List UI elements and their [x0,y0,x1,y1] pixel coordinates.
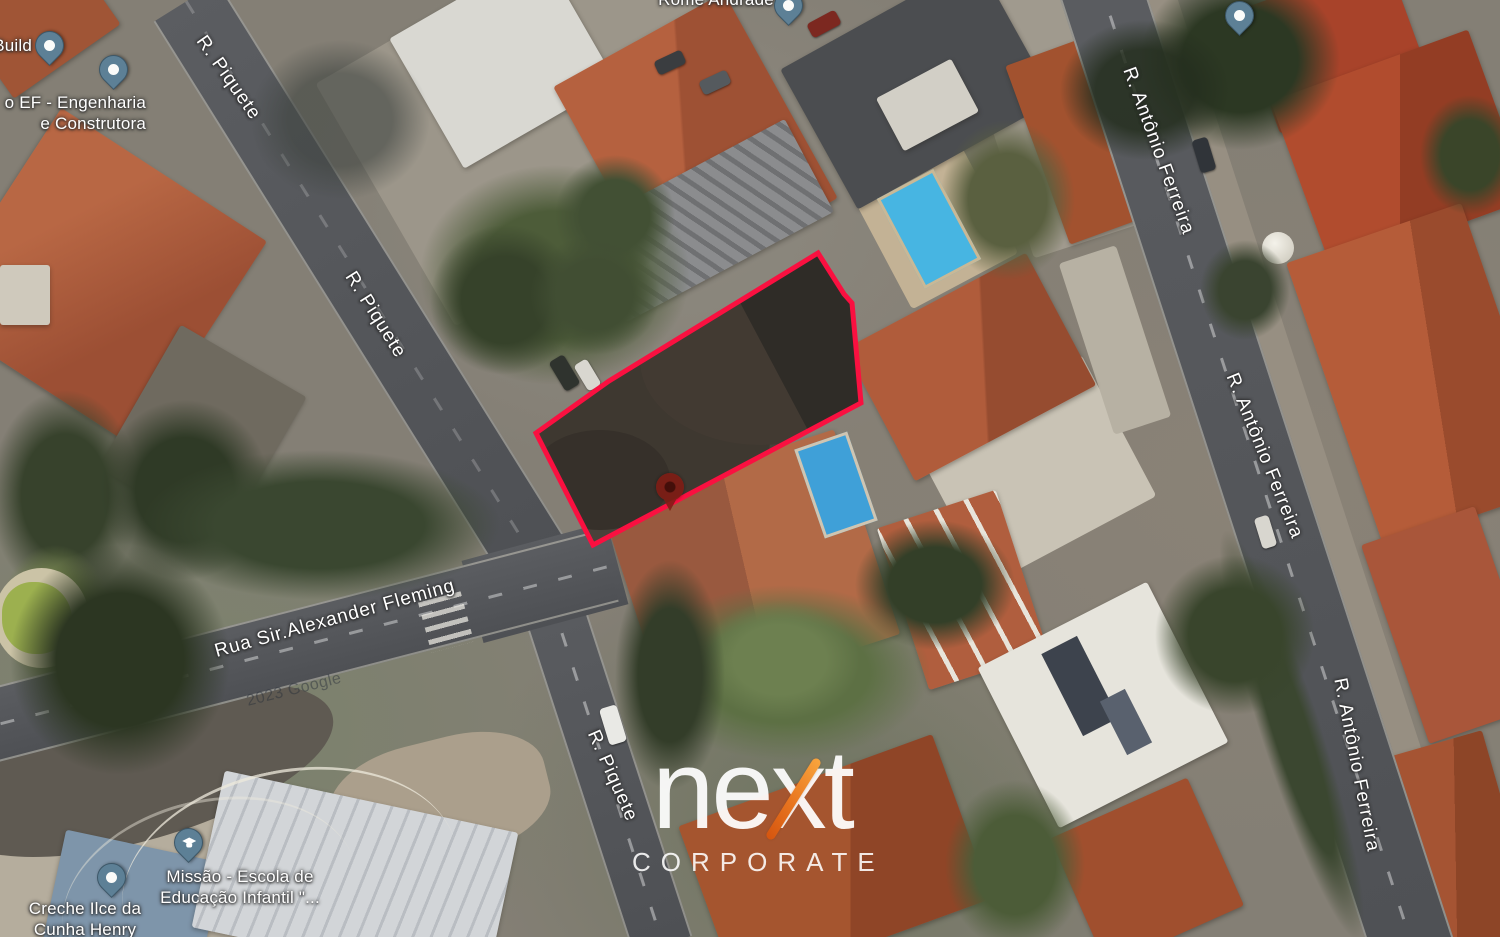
vegetation-blob [1155,555,1315,715]
watermark-brand: next [622,746,882,834]
watermark-subtitle: CORPORATE [622,847,882,878]
place-label-build[interactable]: Build [0,35,32,56]
vegetation-blob [530,235,660,355]
car-shape [806,9,842,38]
vegetation-blob [10,545,230,775]
place-label-rome-andrade[interactable]: Rome Andrade [641,0,791,10]
place-label-line: e Construtora [0,113,146,134]
vegetation-blob [945,780,1085,937]
graduation-cap-icon [181,836,197,850]
place-label-line: o EF - Engenharia [0,92,146,113]
place-label-engenharia[interactable]: o EF - Engenharia e Construtora [0,92,146,134]
tree-shadow [250,40,430,200]
satellite-map[interactable]: R. Piquete R. Piquete R. Piquete Rua Sir… [0,0,1500,937]
map-pin-rome-andrade[interactable] [768,0,809,26]
parcel-marker[interactable] [656,473,684,501]
watermark-next-corporate: next CORPORATE [622,746,882,878]
place-label-creche[interactable]: Creche Ilce da Cunha Henry [0,898,185,937]
place-label-line: Cunha Henry [0,919,185,937]
map-pin-engenharia[interactable] [93,49,134,90]
vegetation-blob [1420,95,1500,215]
roof-shape [0,265,50,325]
place-label-line: Missão - Escola de [120,866,360,887]
vegetation-blob [1200,240,1290,340]
place-label-line: Creche Ilce da [0,898,185,919]
